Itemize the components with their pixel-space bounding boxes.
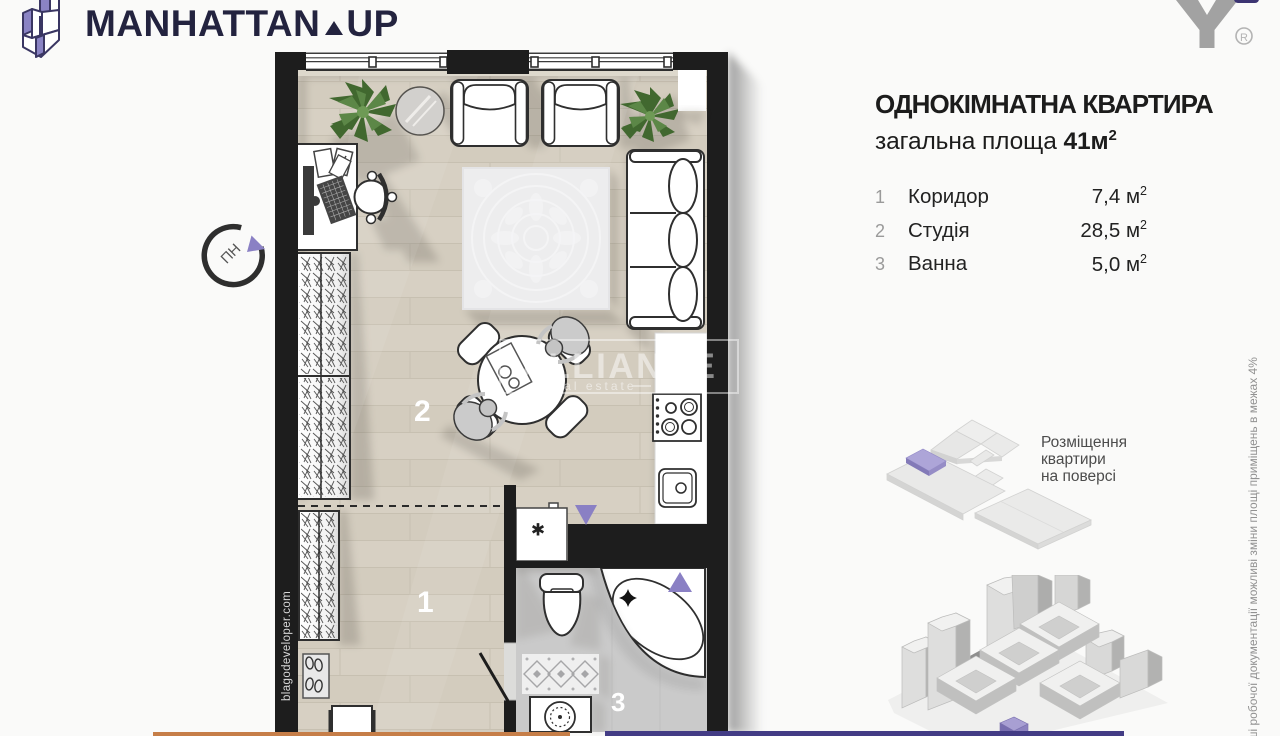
svg-text:2: 2	[414, 395, 431, 428]
svg-text:real estate: real estate	[547, 379, 636, 393]
svg-text:бші робочої документації можли: бші робочої документації можливі зміни п…	[1246, 357, 1260, 736]
svg-text:1: 1	[417, 586, 434, 619]
svg-text:✱: ✱	[531, 520, 545, 539]
svg-text:R: R	[1240, 32, 1248, 44]
svg-text:3: 3	[611, 687, 625, 717]
svg-text:blagodeveloper.com: blagodeveloper.com	[281, 591, 293, 701]
